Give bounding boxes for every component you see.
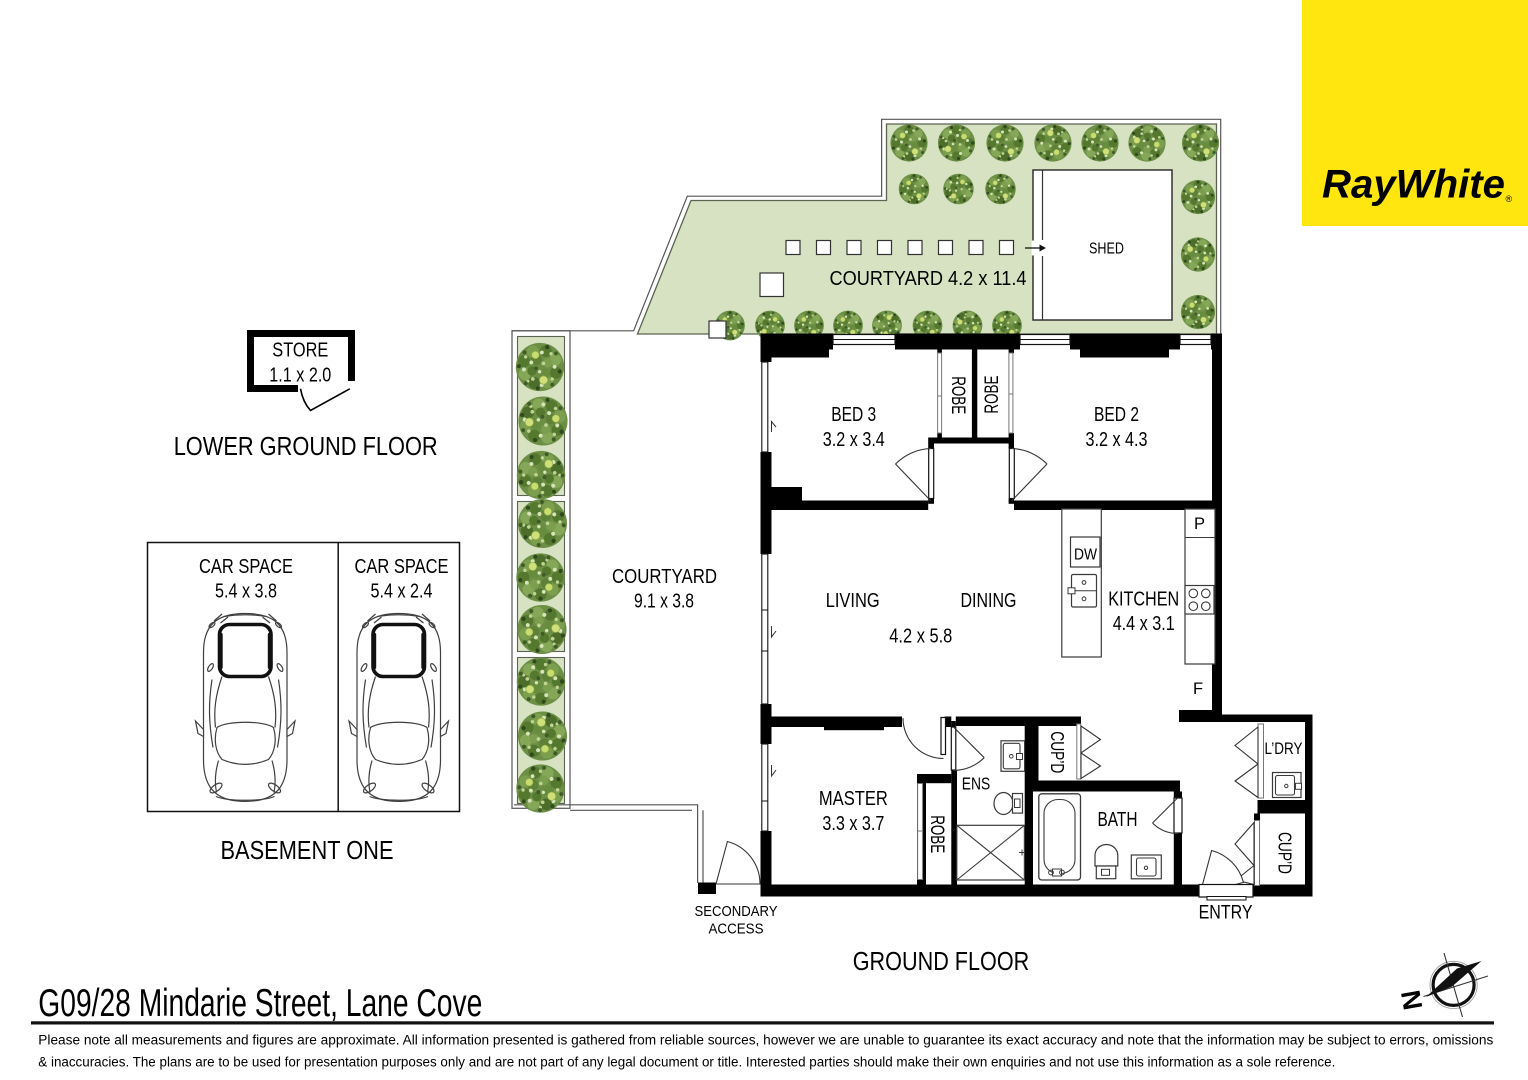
svg-text:RayWhite: RayWhite <box>1322 163 1505 207</box>
svg-text:5.4 x 2.4: 5.4 x 2.4 <box>371 580 433 603</box>
svg-text:ROBE: ROBE <box>982 376 1003 414</box>
svg-text:DINING: DINING <box>961 589 1017 612</box>
svg-text:ENTRY: ENTRY <box>1199 903 1253 924</box>
svg-text:5.4 x 3.8: 5.4 x 3.8 <box>215 580 277 603</box>
svg-text:DW: DW <box>1074 547 1098 564</box>
svg-text:3.2 x 3.4: 3.2 x 3.4 <box>823 428 885 451</box>
svg-text:9.1 x 3.8: 9.1 x 3.8 <box>634 590 694 613</box>
svg-text:STORE: STORE <box>272 339 328 362</box>
svg-text:GROUND FLOOR: GROUND FLOOR <box>853 946 1030 976</box>
svg-text:CAR SPACE: CAR SPACE <box>355 555 449 578</box>
svg-text:Please note all measurements a: Please note all measurements and figures… <box>38 1033 1493 1049</box>
svg-text:COURTYARD: COURTYARD <box>612 565 717 588</box>
svg-text:4.2 x 5.8: 4.2 x 5.8 <box>889 625 952 648</box>
svg-text:ENS: ENS <box>962 774 991 794</box>
svg-text:4.4 x 3.1: 4.4 x 3.1 <box>1113 612 1175 635</box>
svg-text:MASTER: MASTER <box>819 787 888 810</box>
svg-text:BED 2: BED 2 <box>1094 403 1139 426</box>
svg-text:P: P <box>1194 515 1205 533</box>
svg-text:LOWER GROUND FLOOR: LOWER GROUND FLOOR <box>174 431 438 461</box>
svg-text:3.3 x 3.7: 3.3 x 3.7 <box>822 812 884 835</box>
svg-text:F: F <box>1193 680 1203 698</box>
svg-text:LIVING: LIVING <box>826 589 880 612</box>
svg-text:BED 3: BED 3 <box>831 403 876 426</box>
svg-text:®: ® <box>1506 194 1513 204</box>
svg-text:SECONDARY: SECONDARY <box>695 903 778 920</box>
svg-text:L’DRY: L’DRY <box>1265 740 1303 758</box>
svg-text:CUP’D: CUP’D <box>1275 832 1295 874</box>
svg-text:SHED: SHED <box>1089 241 1124 258</box>
svg-text:COURTYARD 4.2 x 11.4: COURTYARD 4.2 x 11.4 <box>830 267 1027 290</box>
svg-text:BATH: BATH <box>1098 808 1138 831</box>
svg-text:ACCESS: ACCESS <box>709 921 764 938</box>
svg-text:BASEMENT ONE: BASEMENT ONE <box>221 835 394 865</box>
svg-text:KITCHEN: KITCHEN <box>1108 588 1179 611</box>
svg-text:CUP’D: CUP’D <box>1047 731 1067 773</box>
svg-text:1.1 x 2.0: 1.1 x 2.0 <box>269 364 331 387</box>
svg-text:G09/28 Mindarie Street, Lane C: G09/28 Mindarie Street, Lane Cove <box>38 982 482 1025</box>
svg-text:ROBE: ROBE <box>926 815 947 853</box>
svg-text:& inaccuracies. The plans are: & inaccuracies. The plans are to be used… <box>38 1055 1335 1071</box>
svg-text:ROBE: ROBE <box>947 376 968 414</box>
svg-text:CAR SPACE: CAR SPACE <box>199 555 293 578</box>
svg-text:3.2 x 4.3: 3.2 x 4.3 <box>1086 428 1148 451</box>
